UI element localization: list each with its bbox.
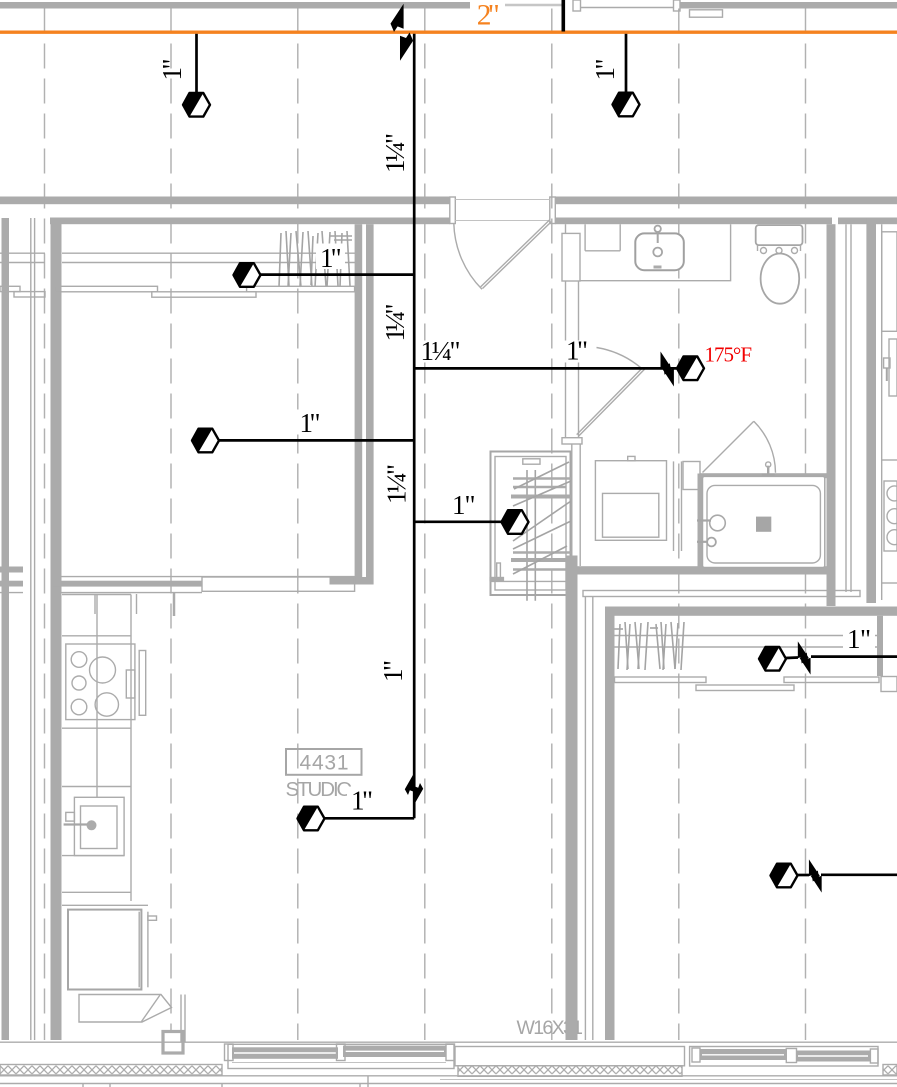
- svg-text:1": 1": [378, 660, 408, 682]
- svg-text:1¼": 1¼": [380, 133, 410, 173]
- svg-text:1": 1": [320, 243, 342, 273]
- svg-text:STUDIO: STUDIO: [286, 778, 353, 801]
- svg-text:1": 1": [566, 336, 588, 366]
- svg-text:1¼": 1¼": [380, 304, 410, 342]
- svg-text:175°F: 175°F: [705, 342, 753, 366]
- svg-text:1¼": 1¼": [421, 336, 461, 366]
- svg-text:1¼": 1¼": [382, 464, 412, 504]
- svg-text:4431: 4431: [300, 752, 349, 775]
- svg-text:1": 1": [300, 408, 321, 438]
- svg-text:2": 2": [477, 0, 500, 32]
- svg-text:1": 1": [351, 785, 373, 815]
- svg-text:1": 1": [847, 624, 871, 654]
- svg-text:1": 1": [452, 490, 476, 520]
- svg-text:1": 1": [590, 59, 620, 81]
- svg-text:1": 1": [157, 59, 187, 81]
